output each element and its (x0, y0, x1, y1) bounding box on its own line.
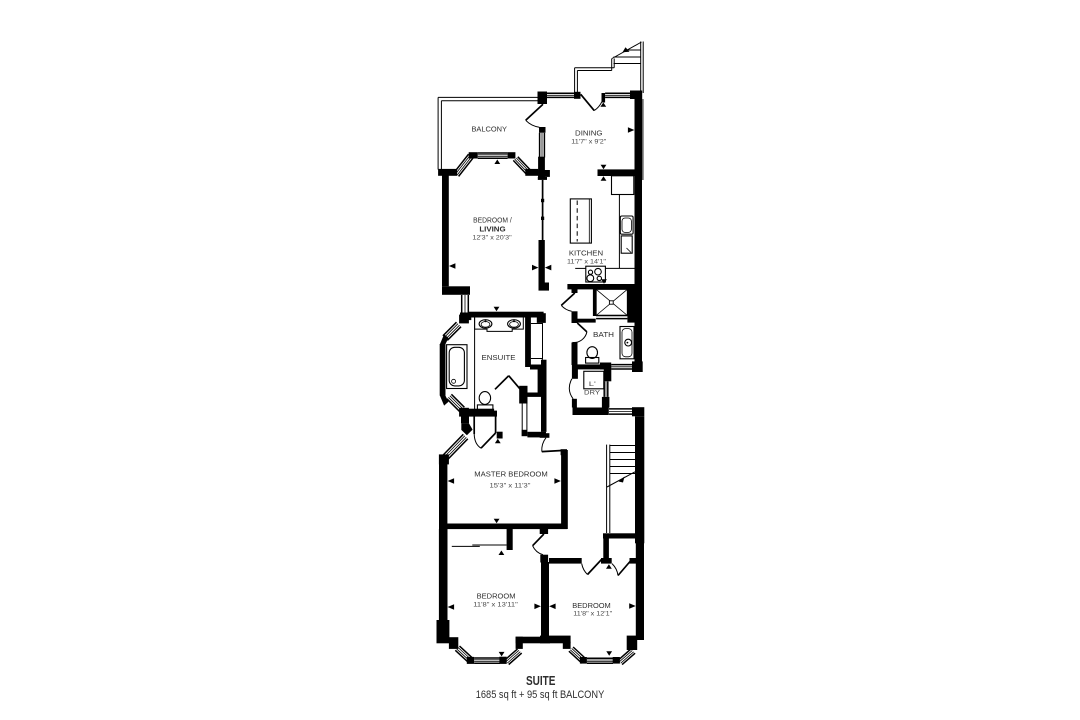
svg-text:12'3" x 20'3": 12'3" x 20'3" (472, 235, 511, 242)
svg-text:1685 sq ft + 95 sq ft BALCONY: 1685 sq ft + 95 sq ft BALCONY (476, 689, 605, 701)
svg-text:11'8" x 12'1": 11'8" x 12'1" (573, 611, 612, 618)
svg-text:BEDROOM /: BEDROOM / (473, 216, 512, 225)
svg-text:BALCONY: BALCONY (471, 125, 507, 134)
svg-text:15'3" x 11'3": 15'3" x 11'3" (490, 483, 531, 490)
svg-text:11'7" x 14'1": 11'7" x 14'1" (567, 258, 606, 265)
svg-text:SUITE: SUITE (526, 673, 556, 688)
svg-text:BEDROOM: BEDROOM (572, 601, 611, 610)
svg-text:KITCHEN: KITCHEN (569, 249, 603, 258)
svg-text:BEDROOM: BEDROOM (477, 592, 516, 601)
svg-text:11'7" x 9'2": 11'7" x 9'2" (571, 139, 606, 146)
svg-text:DINING: DINING (575, 128, 603, 137)
svg-text:MASTER BEDROOM: MASTER BEDROOM (474, 470, 547, 479)
svg-text:LIVING: LIVING (479, 225, 505, 234)
svg-text:DRY: DRY (584, 390, 601, 397)
svg-text:BATH: BATH (593, 330, 614, 339)
svg-text:L': L' (589, 381, 596, 388)
svg-text:ENSUITE: ENSUITE (482, 353, 516, 362)
svg-text:11'8" x 13'11": 11'8" x 13'11" (473, 601, 518, 608)
